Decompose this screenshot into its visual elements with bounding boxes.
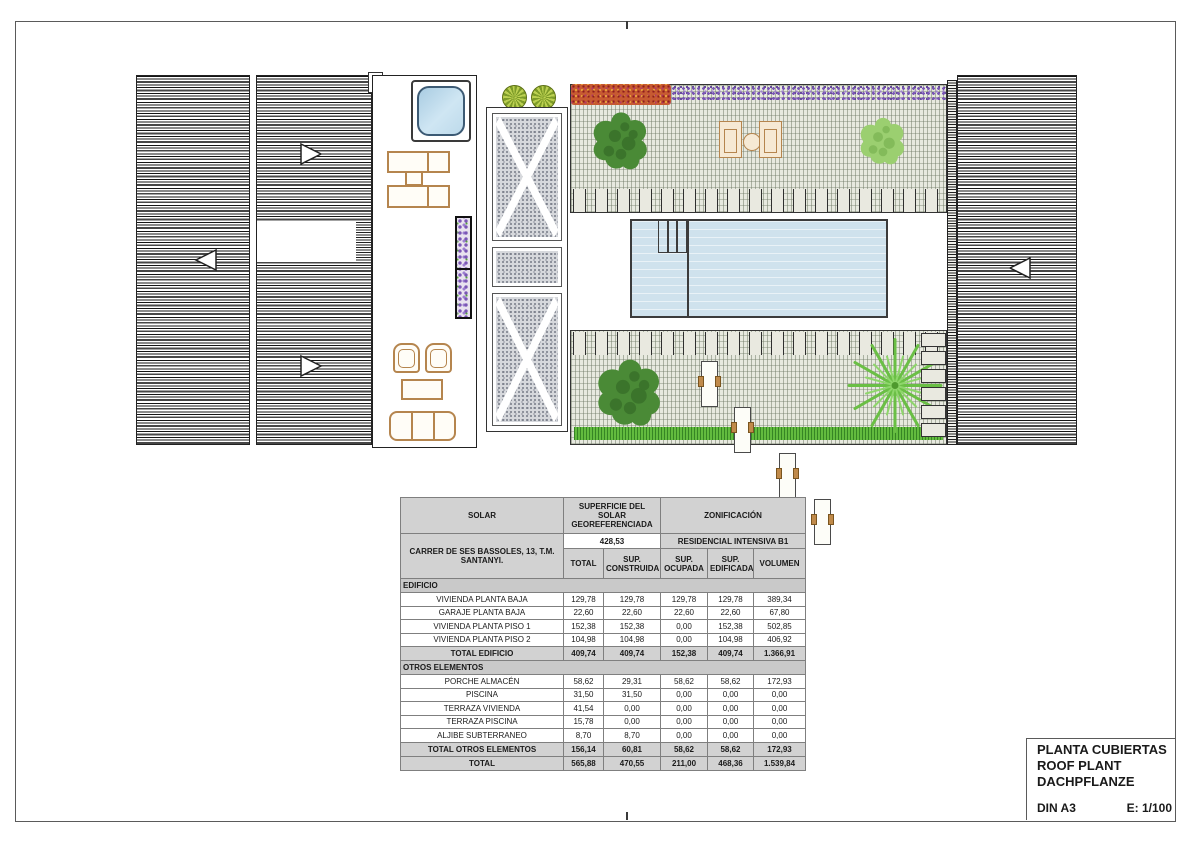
drawing-scale: E: 1/100 (1127, 801, 1172, 815)
table-row: TERRAZA VIVIENDA41,540,000,000,000,00 (401, 702, 806, 716)
table-cell: 22,60 (708, 606, 754, 620)
table-row: EDIFICIO (401, 579, 806, 593)
pergola-posts-row (573, 189, 944, 212)
terrace-sofa (389, 411, 456, 441)
tree-dark-green (578, 350, 682, 438)
slope-arrow-right-icon (299, 142, 325, 166)
table-cell: 468,36 (708, 756, 754, 770)
table-cell: 22,60 (604, 606, 661, 620)
roof-skylight-cutout (257, 222, 356, 262)
table-cell: 1.539,84 (754, 756, 806, 770)
terrace-chair (425, 343, 452, 373)
table-row: TOTAL565,88470,55211,00468,361.539,84 (401, 756, 806, 770)
table-cell: 565,88 (564, 756, 604, 770)
table-cell: VIVIENDA PLANTA PISO 1 (401, 620, 564, 634)
table-cell: 129,78 (604, 593, 661, 607)
flower-bed-purple (671, 86, 946, 101)
table-cell: 0,00 (754, 729, 806, 743)
table-cell: 406,92 (754, 633, 806, 647)
table-cell: 0,00 (708, 688, 754, 702)
title-block-border-left (1026, 738, 1027, 820)
table-cell: 41,54 (564, 702, 604, 716)
table-row: VIVIENDA PLANTA PISO 1152,38152,380,0015… (401, 620, 806, 634)
table-cell: 67,80 (754, 606, 806, 620)
table-cell: 409,74 (564, 647, 604, 661)
roof-cutout-hatch (356, 222, 371, 262)
areas-table-body: EDIFICIOVIVIENDA PLANTA BAJA129,78129,78… (401, 579, 806, 771)
title-block: PLANTA CUBIERTAS ROOF PLANT DACHPFLANZE … (1037, 742, 1172, 815)
table-cell: 211,00 (661, 756, 708, 770)
table-cell: OTROS ELEMENTOS (401, 661, 806, 675)
drawing-title-de: DACHPFLANZE (1037, 774, 1172, 790)
table-cell: ALJIBE SUBTERRANEO (401, 729, 564, 743)
table-cell: TOTAL (401, 756, 564, 770)
table-zona-value: RESIDENCIAL INTENSIVA B1 (661, 534, 806, 549)
table-row: TERRAZA PISCINA15,780,000,000,000,00 (401, 715, 806, 729)
table-cell: 152,38 (708, 620, 754, 634)
table-row: VIVIENDA PLANTA BAJA129,78129,78129,7812… (401, 593, 806, 607)
table-cell: EDIFICIO (401, 579, 806, 593)
sun-lounger (387, 185, 450, 208)
table-cell: 129,78 (708, 593, 754, 607)
table-row: TOTAL OTROS ELEMENTOS156,1460,8158,6258,… (401, 742, 806, 756)
bougainvillea-planter (455, 216, 472, 319)
table-header-superficie: SUPERFICIE DEL SOLAR GEOREFERENCIADA (564, 498, 661, 534)
table-cell: 129,78 (661, 593, 708, 607)
table-cell: 104,98 (604, 633, 661, 647)
table-cell: 0,00 (661, 715, 708, 729)
table-cell: 409,74 (708, 647, 754, 661)
table-cell: 58,62 (661, 675, 708, 689)
table-cell: TOTAL OTROS ELEMENTOS (401, 742, 564, 756)
table-cell: 409,74 (604, 647, 661, 661)
table-cell: PORCHE ALMACÉN (401, 675, 564, 689)
table-col-edificada: SUP. EDIFICADA (708, 549, 754, 579)
table-cell: 502,85 (754, 620, 806, 634)
drawing-title-en: ROOF PLANT (1037, 758, 1172, 774)
terrace-chair (393, 343, 420, 373)
table-cell: TERRAZA PISCINA (401, 715, 564, 729)
table-row: VIVIENDA PLANTA PISO 2104,98104,980,0010… (401, 633, 806, 647)
table-col-ocupada: SUP. OCUPADA (661, 549, 708, 579)
table-header-solar: SOLAR (401, 498, 564, 534)
slope-arrow-left-icon (192, 248, 218, 272)
table-cell: 58,62 (708, 675, 754, 689)
table-row: TOTAL EDIFICIO409,74409,74152,38409,741.… (401, 647, 806, 661)
terrace-table (401, 379, 443, 400)
drawing-title-es: PLANTA CUBIERTAS (1037, 742, 1172, 758)
table-cell: 31,50 (564, 688, 604, 702)
table-cell: 0,00 (661, 688, 708, 702)
wall-hatch-strip (947, 80, 957, 445)
table-cell: 1.366,91 (754, 647, 806, 661)
table-cell: 104,98 (708, 633, 754, 647)
table-row: PISCINA31,5031,500,000,000,00 (401, 688, 806, 702)
table-col-volumen: VOLUMEN (754, 549, 806, 579)
swimming-pool (630, 219, 888, 318)
title-block-border-top (1026, 738, 1175, 739)
sun-lounger (387, 151, 450, 173)
paper-format: DIN A3 (1037, 801, 1076, 815)
table-cell: 0,00 (661, 633, 708, 647)
table-cell: 22,60 (661, 606, 708, 620)
gravel-roof-strip (486, 107, 568, 432)
table-cell: 0,00 (708, 715, 754, 729)
table-cell: 0,00 (661, 620, 708, 634)
table-cell: 15,78 (564, 715, 604, 729)
table-row: GARAJE PLANTA BAJA22,6022,6022,6022,6067… (401, 606, 806, 620)
table-cell: 0,00 (754, 715, 806, 729)
table-cell: TERRAZA VIVIENDA (401, 702, 564, 716)
table-cell: 29,31 (604, 675, 661, 689)
pergola-chair (719, 121, 742, 158)
table-header-zonificacion: ZONIFICACIÓN (661, 498, 806, 534)
tree-light-green (852, 103, 914, 181)
areas-table: SOLAR SUPERFICIE DEL SOLAR GEOREFERENCIA… (400, 497, 806, 771)
table-cell: 389,34 (754, 593, 806, 607)
table-cell: GARAJE PLANTA BAJA (401, 606, 564, 620)
tree-dark-green (583, 98, 659, 186)
table-cell: TOTAL EDIFICIO (401, 647, 564, 661)
table-cell: 104,98 (564, 633, 604, 647)
table-col-total: TOTAL (564, 549, 604, 579)
table-row: PORCHE ALMACÉN58,6229,3158,6258,62172,93 (401, 675, 806, 689)
table-row: OTROS ELEMENTOS (401, 661, 806, 675)
table-cell: 31,50 (604, 688, 661, 702)
pergola-chair (759, 121, 782, 158)
table-cell: VIVIENDA PLANTA BAJA (401, 593, 564, 607)
table-cell: 0,00 (604, 715, 661, 729)
jacuzzi (417, 86, 465, 136)
table-cell: 8,70 (564, 729, 604, 743)
table-row: ALJIBE SUBTERRANEO8,708,700,000,000,00 (401, 729, 806, 743)
pool-lounger (779, 453, 796, 499)
table-cell: 152,38 (661, 647, 708, 661)
table-cell: 0,00 (708, 702, 754, 716)
table-cell: 0,00 (661, 729, 708, 743)
slope-arrow-right-icon (299, 354, 325, 378)
pool-lounger (701, 361, 718, 407)
table-cell: 0,00 (708, 729, 754, 743)
table-cell: 22,60 (564, 606, 604, 620)
table-col-construida: SUP. CONSTRUIDA (604, 549, 661, 579)
table-cell: 8,70 (604, 729, 661, 743)
table-cell: VIVIENDA PLANTA PISO 2 (401, 633, 564, 647)
table-cell: 0,00 (661, 702, 708, 716)
table-cell: 152,38 (604, 620, 661, 634)
table-cell: 172,93 (754, 675, 806, 689)
table-cell: 60,81 (604, 742, 661, 756)
table-cell: 58,62 (564, 675, 604, 689)
pool-lounger (734, 407, 751, 453)
table-cell: 0,00 (604, 702, 661, 716)
table-cell: 58,62 (661, 742, 708, 756)
side-table (405, 171, 423, 186)
gravel-panel (492, 247, 562, 287)
pool-lounger (814, 499, 831, 545)
table-cell: PISCINA (401, 688, 564, 702)
table-cell: 0,00 (754, 688, 806, 702)
slope-arrow-left-icon (1006, 256, 1032, 280)
gravel-x-panel (492, 113, 562, 241)
table-cell: 470,55 (604, 756, 661, 770)
table-cell: 58,62 (708, 742, 754, 756)
table-cell: 156,14 (564, 742, 604, 756)
table-cell: 172,93 (754, 742, 806, 756)
table-cell: 0,00 (754, 702, 806, 716)
pool-steps (658, 221, 687, 253)
gravel-x-panel (492, 293, 562, 426)
table-cell: 129,78 (564, 593, 604, 607)
table-address: CARRER DE SES BASSOLES, 13, T.M. SANTANY… (401, 534, 564, 579)
posts-stack (921, 333, 946, 437)
table-cell: 152,38 (564, 620, 604, 634)
table-superficie-value: 428,53 (564, 534, 661, 549)
